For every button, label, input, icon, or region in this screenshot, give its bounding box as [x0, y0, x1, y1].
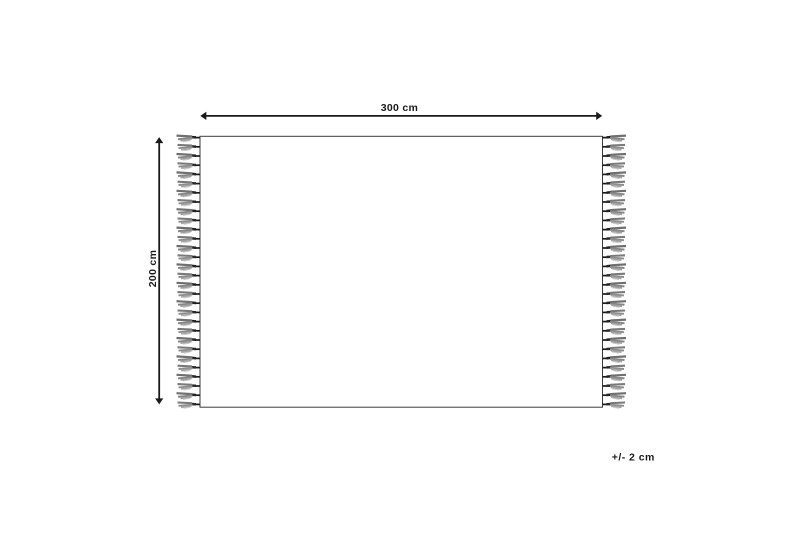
svg-text:200 cm: 200 cm [147, 250, 159, 287]
svg-text:300 cm: 300 cm [381, 102, 418, 114]
svg-text:+/- 2 cm: +/- 2 cm [612, 452, 655, 464]
